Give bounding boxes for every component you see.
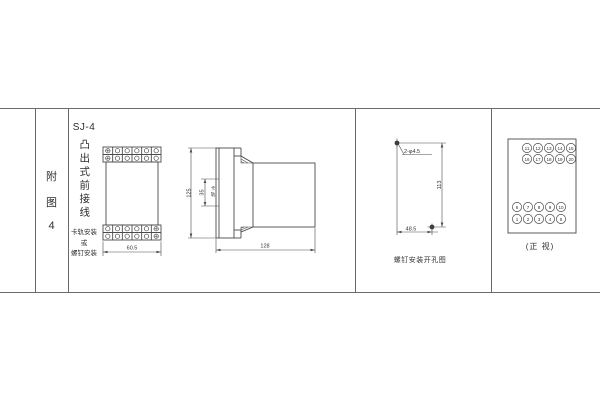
rail-label-char-1: 卡 [211,185,216,192]
terminal-17: 17 [535,157,541,162]
model-label: SJ-4 [73,122,96,133]
drill-plan-caption: 螺钉安装开孔图 [394,255,447,264]
horizontal-dim-label: 48.5 [406,227,417,233]
width-dim-label: 60.5 [127,246,138,252]
relay-body-outline [106,162,158,225]
terminal-6: 6 [516,205,519,210]
drawing-sheet: 附 图 4 SJ-4 凸出式前接线 卡轨安装 或 螺钉安装 [0,0,600,400]
front-view-caption: (正 视) [526,241,555,251]
terminal-12: 12 [535,146,541,151]
terminal-1: 1 [516,217,519,222]
vertical-dim-label: 113 [437,181,443,190]
terminal-15: 15 [568,146,574,151]
divider-4 [491,108,492,292]
hatch-triangles [241,156,253,232]
holes-label: 2-φ4.5 [404,149,420,155]
terminal-group-bottom: 6 7 8 9 10 1 2 3 4 5 [512,202,565,223]
terminal-3: 3 [538,217,541,222]
height-dim-label: 125 [187,188,193,197]
terminal-block-top [103,147,161,162]
terminal-19: 19 [557,157,563,162]
figure-number-cell: 附 图 4 [35,108,68,292]
terminal-4: 4 [549,217,552,222]
mounting-note-line-3: 螺钉安装 [71,249,97,260]
terminal-11: 11 [525,146,530,151]
horizontal-dimension [397,146,438,235]
terminal-7: 7 [527,205,530,210]
terminal-8: 8 [538,205,541,210]
drill-plan-drawing: 2-φ4.5 113 48.5 螺钉安装开孔图 [380,135,470,270]
terminal-block-bottom [103,225,161,240]
terminal-10: 10 [558,205,564,210]
mounting-note: 卡轨安装 或 螺钉安装 [71,228,97,260]
terminal-9: 9 [549,205,552,210]
mounting-note-line-2: 或 [71,239,97,250]
terminal-16: 16 [524,157,530,162]
terminal-group-top: 11 12 13 14 15 16 17 18 19 20 [522,143,575,163]
rail-dim-label: 35 [200,189,206,195]
band-bottom-rule [0,292,600,293]
terminal-20: 20 [568,157,574,162]
terminal-front-view-drawing: 11 12 13 14 15 16 17 18 19 20 6 7 8 9 10 [500,135,595,260]
terminal-2: 2 [527,217,530,222]
figure-char-2: 图 [46,194,57,210]
mounting-note-line-1: 卡轨安装 [71,228,97,239]
terminal-14: 14 [557,146,563,151]
vertical-title: 凸出式前接线 [79,139,90,220]
figure-char-1: 附 [46,168,57,184]
rail-label-char-2: 轨 [211,191,216,198]
rail-label: 卡 轨 [211,185,216,198]
side-view-drawing: 125 35 卡 轨 128 [185,130,335,265]
terminal-18: 18 [546,157,552,162]
depth-dim-label: 128 [260,244,269,250]
side-view-outline [216,148,315,238]
terminal-5: 5 [560,217,563,222]
divider-3 [355,108,356,292]
figure-char-3: 4 [48,220,54,232]
front-terminal-view-drawing: 60.5 [95,138,175,260]
terminal-13: 13 [546,146,552,151]
